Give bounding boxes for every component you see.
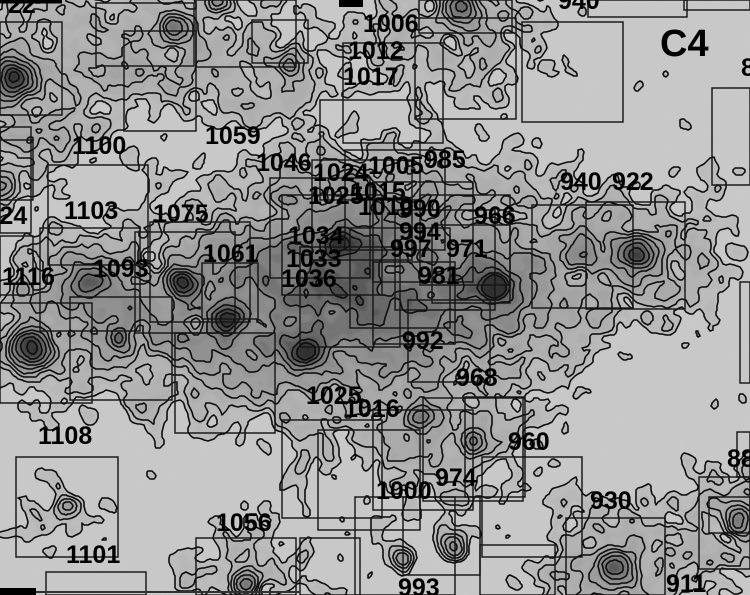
- svg-text:1100: 1100: [72, 132, 126, 160]
- svg-text:960: 960: [508, 428, 550, 456]
- svg-text:997: 997: [390, 235, 432, 263]
- svg-text:1046: 1046: [256, 149, 312, 177]
- svg-text:1061: 1061: [203, 240, 259, 268]
- svg-text:922: 922: [612, 168, 654, 196]
- svg-text:974: 974: [435, 464, 477, 492]
- svg-text:88: 88: [727, 445, 750, 473]
- svg-text:1093: 1093: [93, 255, 149, 283]
- svg-text:911: 911: [666, 570, 706, 595]
- svg-text:1103: 1103: [64, 197, 118, 225]
- svg-text:992: 992: [402, 327, 444, 355]
- svg-text:1000: 1000: [376, 477, 432, 505]
- svg-text:1036: 1036: [281, 265, 337, 293]
- svg-text:1116: 1116: [2, 263, 55, 291]
- svg-text:1108: 1108: [38, 422, 92, 450]
- svg-text:1017: 1017: [343, 63, 399, 91]
- svg-text:993: 993: [398, 574, 440, 595]
- svg-text:1124: 1124: [0, 202, 27, 230]
- svg-text:966: 966: [474, 202, 516, 230]
- svg-text:1075: 1075: [153, 200, 209, 228]
- svg-text:8: 8: [741, 54, 750, 82]
- svg-text:C4: C4: [660, 23, 709, 65]
- svg-text:940: 940: [560, 168, 602, 196]
- svg-text:1005: 1005: [368, 152, 424, 180]
- svg-text:1006: 1006: [363, 10, 419, 38]
- svg-text:1016: 1016: [344, 395, 400, 423]
- svg-text:1101: 1101: [66, 541, 120, 569]
- svg-text:1012: 1012: [348, 37, 404, 65]
- svg-text:1056: 1056: [216, 509, 272, 537]
- svg-text:981: 981: [418, 262, 460, 290]
- svg-text:971: 971: [446, 235, 488, 263]
- svg-text:930: 930: [590, 487, 632, 515]
- svg-text:968: 968: [456, 364, 498, 392]
- svg-text:1059: 1059: [205, 122, 261, 150]
- svg-text:985: 985: [424, 146, 466, 174]
- svg-text:940: 940: [558, 0, 600, 15]
